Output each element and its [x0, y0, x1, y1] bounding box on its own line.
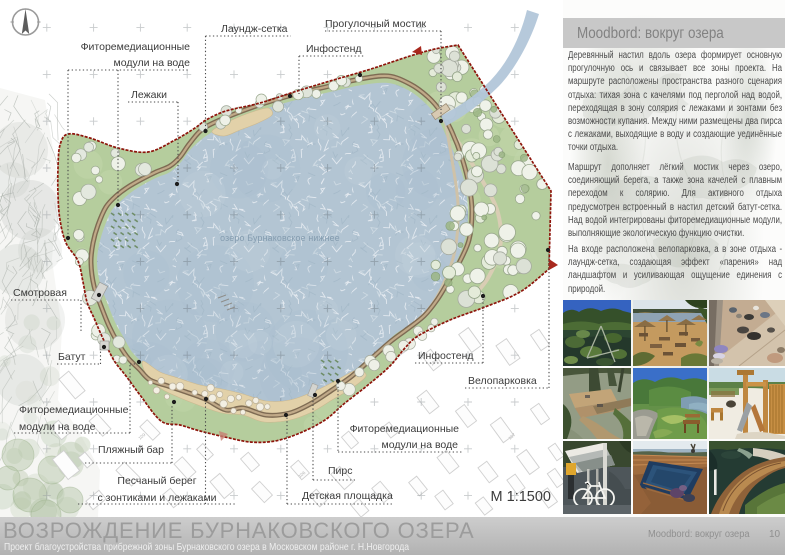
svg-text:Лаундж-сетка: Лаундж-сетка — [221, 23, 288, 35]
svg-text:модули на воде: модули на воде — [382, 439, 459, 451]
svg-text:Песчаный берег: Песчаный берег — [117, 475, 196, 487]
svg-text:Смотровая: Смотровая — [13, 287, 67, 299]
svg-text:М 1:1500: М 1:1500 — [491, 489, 551, 505]
svg-text:Инфостенд: Инфостенд — [306, 43, 362, 55]
svg-text:Инфостенд: Инфостенд — [418, 350, 474, 362]
svg-text:Детская площадка: Детская площадка — [302, 490, 393, 502]
svg-text:Пирс: Пирс — [328, 465, 353, 477]
svg-text:Фиторемедиационные: Фиторемедиационные — [350, 423, 460, 435]
svg-text:модули на воде: модули на воде — [19, 421, 96, 433]
svg-text:Пляжный бар: Пляжный бар — [98, 444, 164, 456]
svg-text:Фиторемедиационные: Фиторемедиационные — [81, 41, 191, 53]
svg-text:Батут: Батут — [58, 351, 86, 363]
svg-text:Лежаки: Лежаки — [131, 89, 167, 101]
svg-text:Фиторемедиационные: Фиторемедиационные — [19, 404, 129, 416]
svg-text:Велопарковка: Велопарковка — [468, 375, 537, 387]
svg-text:с зонтиками и лежаками: с зонтиками и лежаками — [97, 492, 216, 504]
svg-text:Прогулочный мостик: Прогулочный мостик — [325, 18, 427, 30]
svg-text:озеро Бурнаковское нижнее: озеро Бурнаковское нижнее — [220, 233, 340, 243]
svg-text:модули на воде: модули на воде — [114, 57, 191, 69]
